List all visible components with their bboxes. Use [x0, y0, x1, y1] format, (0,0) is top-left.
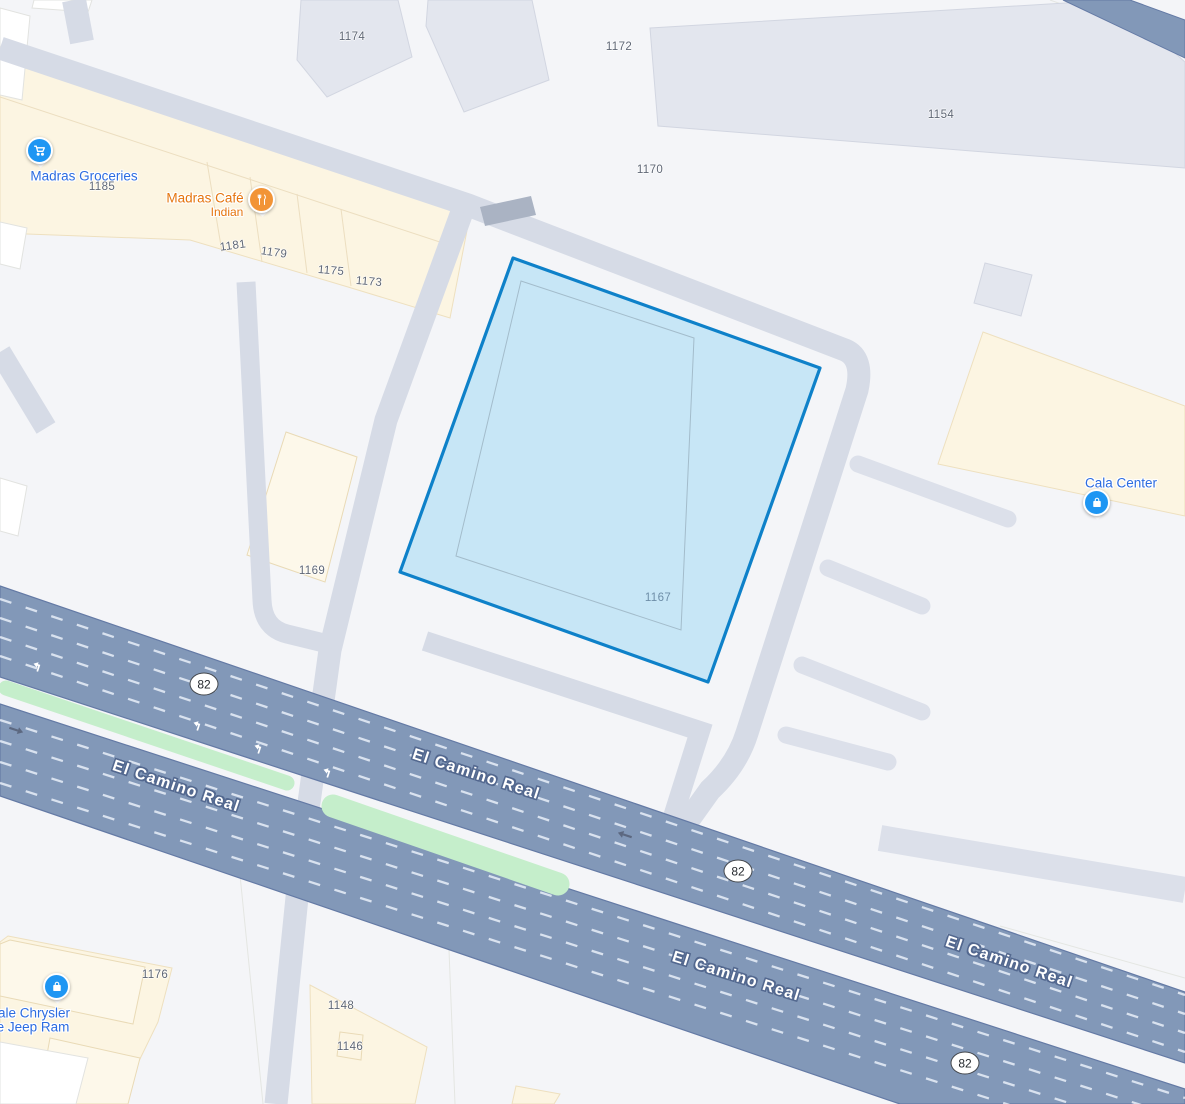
- address-label: 1154: [928, 109, 954, 121]
- road-name-label: El Camino Real: [410, 746, 542, 804]
- address-label: 1169: [299, 565, 325, 577]
- road-name-label: El Camino Real: [110, 757, 242, 816]
- label-layer: 1174 1172 1170 1154 1185 1181 1179 1175 …: [0, 0, 1185, 1104]
- shopping-cart-icon: [26, 137, 53, 164]
- parcel-number-label: 1167: [645, 592, 671, 604]
- route-shield: 82: [724, 860, 753, 883]
- address-label: 1179: [260, 245, 288, 261]
- shopping-bag-icon: [1083, 489, 1110, 516]
- address-label: 1170: [637, 164, 663, 176]
- map-canvas[interactable]: 1174 1172 1170 1154 1185 1181 1179 1175 …: [0, 0, 1185, 1104]
- poi-label-madras-groceries[interactable]: Madras Groceries: [30, 169, 137, 184]
- poi-label-madras-cafe[interactable]: Madras Café: [166, 191, 243, 206]
- address-label: 1175: [317, 264, 344, 278]
- shopping-bag-icon: [43, 973, 70, 1000]
- address-label: 1174: [339, 31, 365, 43]
- address-label: 1181: [219, 238, 247, 254]
- address-label: 1146: [337, 1041, 363, 1053]
- address-label: 1172: [606, 41, 632, 53]
- poi-sublabel-madras-cafe: Indian: [211, 205, 244, 219]
- poi-label-chrysler-line2[interactable]: e Jeep Ram: [0, 1020, 69, 1035]
- road-name-label: El Camino Real: [670, 948, 803, 1005]
- address-label: 1176: [142, 969, 168, 981]
- restaurant-icon: [248, 186, 275, 213]
- address-label: 1148: [328, 1000, 354, 1012]
- road-name-label: El Camino Real: [943, 933, 1075, 992]
- poi-label-chrysler-line1[interactable]: ale Chrysler: [0, 1006, 70, 1021]
- route-shield: 82: [951, 1052, 980, 1075]
- route-shield: 82: [190, 673, 219, 696]
- address-label: 1173: [355, 275, 382, 289]
